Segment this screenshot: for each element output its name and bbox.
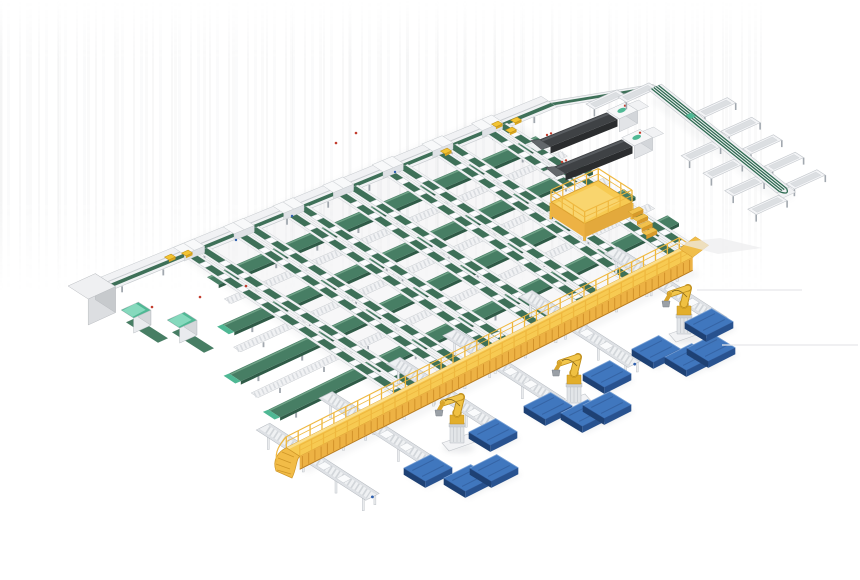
robot-gripper [552,370,560,376]
warehouse-3d-render [0,0,860,580]
chute-tray [703,159,743,186]
pallet [469,419,521,453]
chute-tray [681,142,721,169]
robot-gripper [662,301,670,307]
chute-tray [748,195,788,221]
chute-tray [725,177,765,204]
factory-render-canvas [0,0,860,580]
robot-gripper [435,410,443,416]
loop-feed-conveyors [121,302,214,353]
